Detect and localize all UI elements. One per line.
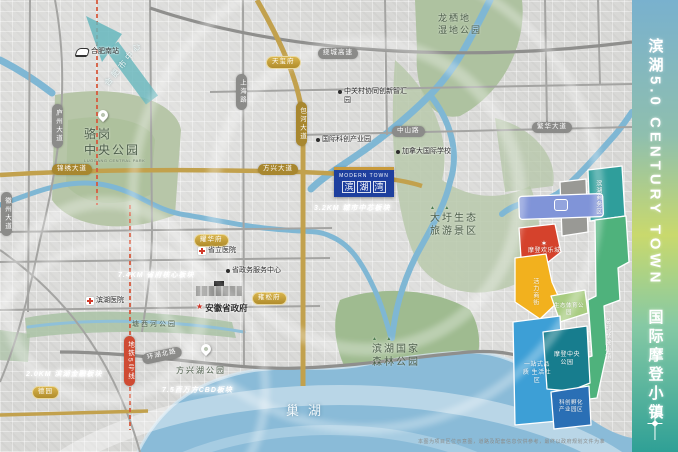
poi-label: 省立医院 xyxy=(198,247,236,256)
park-label-line: 骆岗 xyxy=(84,126,145,142)
park-label-line: 塘西河公园 xyxy=(132,320,177,329)
distance-note: 3.2KM 城市中芯板块 xyxy=(314,203,391,213)
parcel-label: 一站式品质 生活社区 xyxy=(521,362,553,385)
park-label-line: 湿地公园 xyxy=(438,24,482,36)
poi-text: 国际科创产业园 xyxy=(322,136,371,145)
distance-note: 2.0KM 滨湖金融板块 xyxy=(26,369,103,379)
train-icon xyxy=(75,48,91,56)
road-label: 锦绣大道 xyxy=(52,164,92,175)
poi-label: ★安徽省政府 xyxy=(196,303,248,314)
road-label: 中山路 xyxy=(392,126,425,137)
project-pill: 耀华府 xyxy=(194,234,229,247)
poi-label: 加拿大国际学校 xyxy=(396,148,451,157)
compass-n-label: N xyxy=(652,404,657,411)
cross-icon xyxy=(198,247,206,255)
park-label-line: 滨湖国家 xyxy=(372,343,420,357)
park-label-line: 中央公园 xyxy=(84,142,145,158)
parcel-label-text: 摩登欢乐城 xyxy=(528,248,561,254)
logo-cn-char: 湖 xyxy=(357,181,370,193)
park-label-line: 大圩生态 xyxy=(430,212,478,226)
parcel-label: 总部墅院小镇 xyxy=(602,318,610,360)
road-label: 上海路 xyxy=(236,74,247,110)
map-pin-icon xyxy=(96,108,110,122)
parcel-label: 活力商街 xyxy=(530,278,538,306)
parcel-logo-icon xyxy=(554,199,568,211)
city-map: 合肥市中心 MODERN TOWN 滨湖湾 巢湖 本图为项目区位示意图，道路及配… xyxy=(0,0,632,452)
distance-note: 7.4KM 省府核心板块 xyxy=(118,270,195,280)
dot-icon xyxy=(338,90,342,94)
park-label-line: 旅游景区 xyxy=(430,225,478,239)
park-label: ▲ ▲大圩生态旅游景区 xyxy=(430,205,478,239)
project-pill: 雍松府 xyxy=(252,292,287,305)
logo-cn-text: 滨湖湾 xyxy=(336,181,392,193)
park-label: 骆岗中央公园LUOGANG CENTRAL PARK xyxy=(84,126,145,164)
city-center-direction-label: 合肥市中心 xyxy=(102,39,145,89)
parcel-label: 生态体育公园 xyxy=(552,303,586,317)
road-label: 方兴大道 xyxy=(258,164,298,175)
starburst-icon: ✶ xyxy=(528,240,561,248)
poi-label: 合肥南站 xyxy=(76,48,119,57)
park-label-en: LUOGANG CENTRAL PARK xyxy=(84,158,145,163)
road-label: 徽州大道 xyxy=(1,192,12,236)
park-label: 方兴湖公园 xyxy=(176,366,226,377)
cross-icon xyxy=(86,297,94,305)
parcel-label-text: 生态体育公园 xyxy=(554,303,584,316)
poi-text: 合肥南站 xyxy=(91,48,119,57)
distance-note: 7.5百万方CBD板块 xyxy=(162,385,233,395)
poi-label: 国际科创产业园 xyxy=(316,136,371,145)
logo-cn-char: 滨 xyxy=(342,181,355,193)
parcel-label-text: 活力商街 xyxy=(532,278,538,306)
poi-label: 中关村协同创新智汇园 xyxy=(338,88,410,106)
dot-icon xyxy=(396,150,400,154)
parcel-label: 滨湖商务区 xyxy=(593,180,601,215)
map-label-layer: 合肥市中心 MODERN TOWN 滨湖湾 巢湖 本图为项目区位示意图，道路及配… xyxy=(0,0,632,452)
park-label-line: 方兴湖公园 xyxy=(176,366,226,377)
location-map-poster: 合肥市中心 MODERN TOWN 滨湖湾 巢湖 本图为项目区位示意图，道路及配… xyxy=(0,0,678,452)
dot-icon xyxy=(316,138,320,142)
map-pin-icon xyxy=(199,342,213,356)
park-label-line: 龙栖地 xyxy=(438,12,482,24)
poi-text: 安徽省政府 xyxy=(205,303,248,314)
park-label: ▲ ▲滨湖国家森林公园 xyxy=(372,336,420,370)
parcel-label-text: 滨湖商务区 xyxy=(595,180,601,215)
parcel-label-text: 摩登中央公园 xyxy=(554,352,580,366)
road-label: 庐州大道 xyxy=(52,104,63,148)
park-label-line: 森林公园 xyxy=(372,356,420,370)
road-label: 包河大道 xyxy=(296,102,307,146)
park-label: 塘西河公园 xyxy=(132,320,177,329)
poi-text: 中关村协同创新智汇园 xyxy=(344,88,410,106)
parcel-label-text: 科创孵化 产业园区 xyxy=(559,400,583,413)
road-label: 绕城高速 xyxy=(318,48,358,59)
parcel-label: 科创孵化 产业园区 xyxy=(556,400,586,414)
road-label: 繁华大道 xyxy=(532,122,572,133)
park-label: 龙栖地湿地公园 xyxy=(438,12,482,36)
compass-needle-icon xyxy=(655,412,656,440)
poi-text: 省立医院 xyxy=(208,247,236,256)
title-sidebar: 滨湖5.0 CENTURY TOWN 国际摩登小镇 N xyxy=(632,0,678,452)
metro-line-label: 地铁5号线 xyxy=(124,336,135,386)
parcel-label-text: 一站式品质 生活社区 xyxy=(523,362,551,384)
star-icon: ★ xyxy=(196,303,203,311)
poi-text: 滨湖医院 xyxy=(96,297,124,306)
project-pill: 德园 xyxy=(32,386,59,399)
parcel-label-text: 总部墅院小镇 xyxy=(604,318,610,360)
poi-label: 省政务服务中心 xyxy=(226,267,281,276)
logo-en-text: MODERN TOWN xyxy=(336,173,392,179)
map-disclaimer: 本图为项目区位示意图，道路及配套信息仅供参考，最终以政府规划文件为准 xyxy=(418,438,605,445)
project-pill: 天玺府 xyxy=(266,56,301,69)
logo-cn-char: 湾 xyxy=(373,181,386,193)
parcel-label: 摩登中央公园 xyxy=(554,352,580,368)
road-label: 环湖北路 xyxy=(141,346,182,365)
tree-icon: ▲ ▲ xyxy=(430,205,478,212)
dot-icon xyxy=(226,269,230,273)
sidebar-title-main: 滨湖5.0 CENTURY TOWN xyxy=(647,38,664,286)
lake-label: 巢湖 xyxy=(286,400,330,419)
poi-label: 滨湖医院 xyxy=(86,297,124,306)
poi-text: 加拿大国际学校 xyxy=(402,148,451,157)
poi-text: 省政务服务中心 xyxy=(232,267,281,276)
project-logo: MODERN TOWN 滨湖湾 xyxy=(334,167,394,197)
parcel-label: ✶摩登欢乐城 xyxy=(528,240,561,256)
compass-north-indicator: N xyxy=(652,404,657,440)
tree-icon: ▲ ▲ xyxy=(372,336,420,343)
